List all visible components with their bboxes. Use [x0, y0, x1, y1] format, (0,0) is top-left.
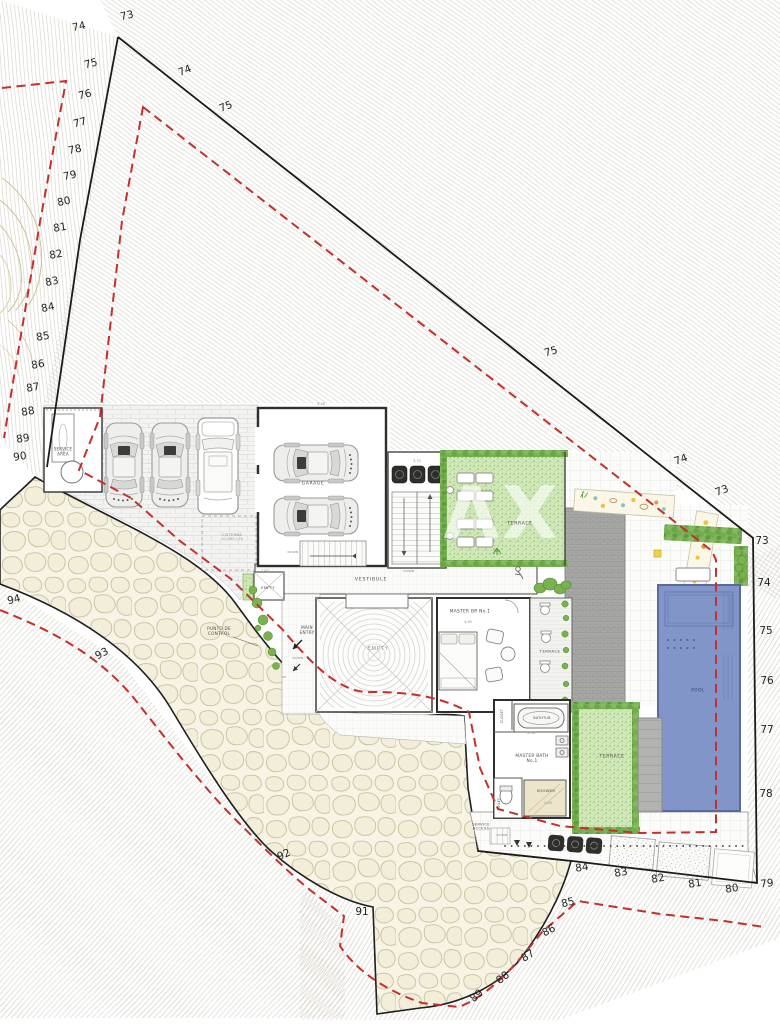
bathtub-icon [518, 708, 564, 728]
pool-steps [638, 718, 662, 812]
car-garage-2 [274, 496, 358, 536]
master-bath [494, 700, 570, 818]
garage [255, 408, 386, 566]
courtyard-bench [346, 594, 408, 608]
cistern-tank [61, 461, 83, 483]
pool-bench [676, 568, 710, 581]
pool [658, 585, 740, 811]
shower-floor [524, 780, 566, 816]
car-garage-1 [274, 443, 358, 483]
courtyard [308, 589, 440, 721]
site-plan: AX 7374757677787980818283848586878889907… [0, 0, 780, 1024]
car-suv [196, 418, 240, 514]
service-area-room [44, 408, 102, 492]
car-sedan-2 [150, 423, 190, 507]
master-bedroom [437, 598, 530, 712]
service-access-steps [490, 828, 510, 844]
garage-stairs [300, 541, 366, 566]
terrace-upper [440, 450, 568, 567]
wood-deck [565, 508, 625, 706]
terrace-br [530, 598, 572, 712]
toilet-icon [500, 786, 512, 804]
bed-icon [439, 632, 477, 690]
site-plan-drawing [0, 0, 780, 1024]
planter-dark [392, 466, 443, 483]
terrace-bath [572, 702, 640, 834]
yellow-marker [654, 550, 661, 557]
stair-hall [388, 452, 446, 568]
